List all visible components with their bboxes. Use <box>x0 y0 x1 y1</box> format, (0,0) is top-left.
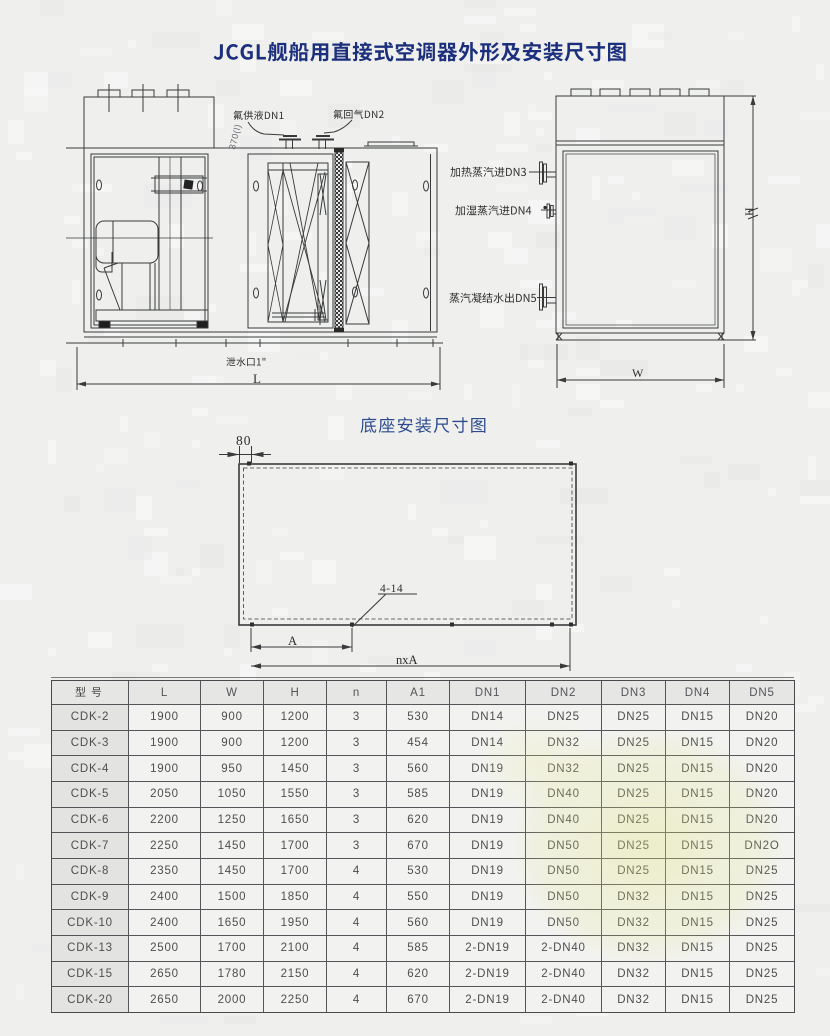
svg-text:H: H <box>742 207 756 216</box>
svg-text:A: A <box>288 634 297 648</box>
svg-text:nxA: nxA <box>396 653 418 667</box>
svg-text:80: 80 <box>236 433 252 448</box>
svg-text:4-14: 4-14 <box>380 583 403 595</box>
svg-text:W: W <box>632 366 644 380</box>
svg-text:L: L <box>253 371 261 386</box>
